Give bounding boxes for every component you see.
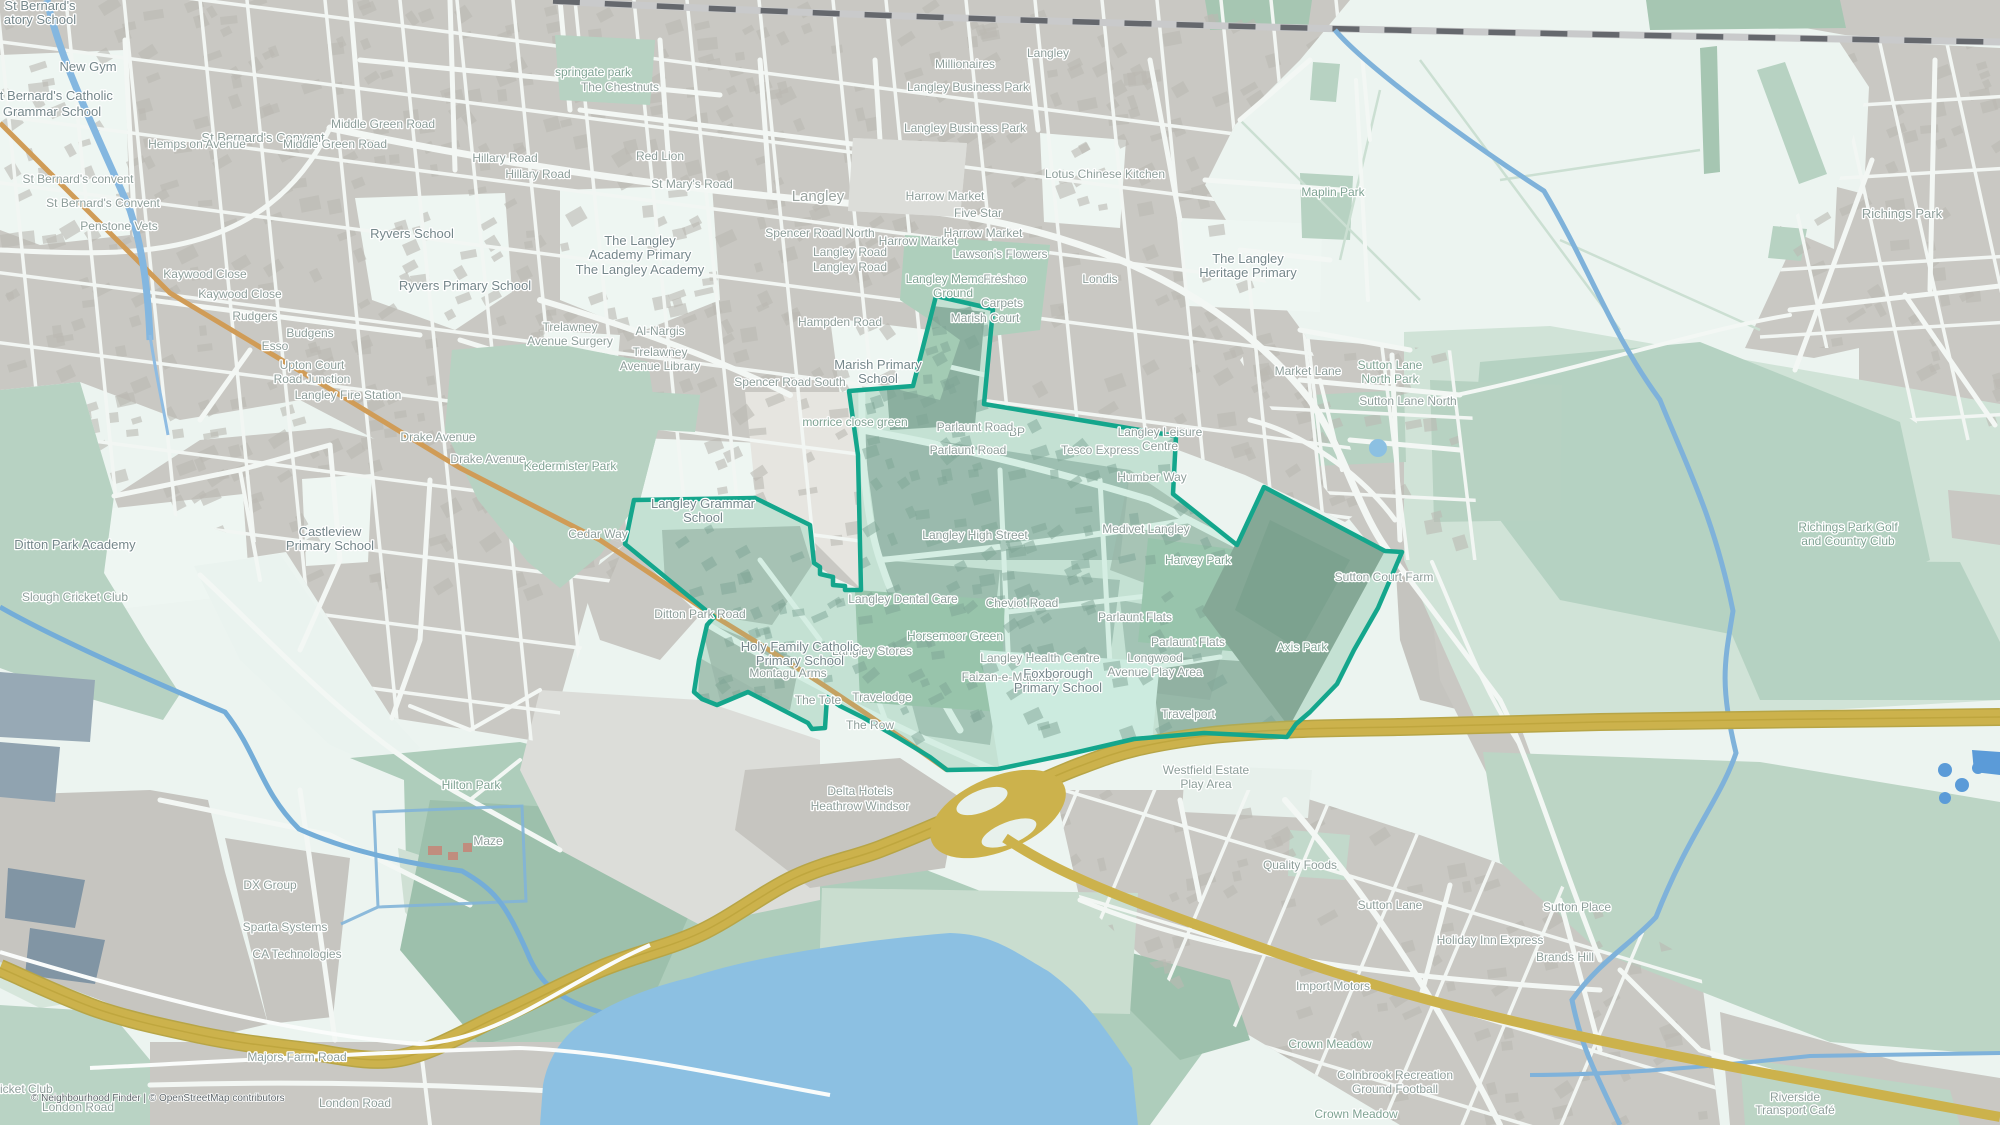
- svg-text:morrice close green: morrice close green: [802, 415, 907, 429]
- svg-text:The Chestnuts: The Chestnuts: [581, 80, 659, 94]
- svg-text:DX Group: DX Group: [243, 878, 297, 892]
- svg-text:Budgens: Budgens: [286, 326, 333, 340]
- svg-text:Freshco: Freshco: [983, 272, 1027, 286]
- svg-text:Langley Road: Langley Road: [813, 260, 887, 274]
- svg-text:Cheviot Road: Cheviot Road: [986, 596, 1059, 610]
- svg-text:The Langley Academy: The Langley Academy: [576, 262, 705, 277]
- svg-text:Langley Business Park: Langley Business Park: [907, 80, 1030, 94]
- svg-text:Trelawney: Trelawney: [633, 345, 688, 359]
- svg-text:Kaywood Close: Kaywood Close: [163, 267, 247, 281]
- svg-text:Richings Park Golf: Richings Park Golf: [1798, 520, 1898, 534]
- svg-text:Colnbrook Recreation: Colnbrook Recreation: [1337, 1068, 1453, 1082]
- svg-text:Esso: Esso: [262, 339, 289, 353]
- svg-text:Primary School: Primary School: [286, 538, 374, 553]
- svg-text:Millionaires: Millionaires: [935, 57, 995, 71]
- svg-text:Kaywood Close: Kaywood Close: [198, 287, 282, 301]
- svg-text:Lotus Chinese Kitchen: Lotus Chinese Kitchen: [1045, 167, 1165, 181]
- svg-text:Parlaunt Road: Parlaunt Road: [937, 420, 1014, 434]
- svg-text:Carpets: Carpets: [981, 296, 1023, 310]
- svg-text:Westfield Estate: Westfield Estate: [1163, 763, 1250, 777]
- svg-text:Ditton Park Academy: Ditton Park Academy: [14, 537, 136, 552]
- svg-text:Transport Café: Transport Café: [1755, 1103, 1835, 1117]
- svg-text:Avenue Play Area: Avenue Play Area: [1107, 665, 1203, 679]
- svg-text:Travelport: Travelport: [1161, 707, 1215, 721]
- svg-text:Langley: Langley: [792, 188, 845, 205]
- svg-text:Travelodge: Travelodge: [852, 690, 912, 704]
- svg-text:Spencer Road South: Spencer Road South: [734, 375, 845, 389]
- svg-text:St Bernard's Convent: St Bernard's Convent: [46, 196, 160, 210]
- svg-text:Langley Business Park: Langley Business Park: [904, 121, 1027, 135]
- svg-text:Langley Dental Care: Langley Dental Care: [848, 592, 958, 606]
- svg-text:Grammar School: Grammar School: [3, 104, 101, 119]
- svg-text:and Country Club: and Country Club: [1801, 534, 1895, 548]
- svg-text:Langley: Langley: [1027, 46, 1069, 60]
- svg-text:Maze: Maze: [473, 834, 503, 848]
- svg-text:atory School: atory School: [4, 12, 76, 27]
- svg-text:Sutton Court Farm: Sutton Court Farm: [1335, 570, 1434, 584]
- svg-text:Sutton Lane: Sutton Lane: [1358, 898, 1423, 912]
- svg-text:St Bernard's Catholic: St Bernard's Catholic: [0, 88, 113, 103]
- svg-text:Montagu Arms: Montagu Arms: [749, 666, 826, 680]
- svg-text:Parlaunt Road: Parlaunt Road: [930, 443, 1007, 457]
- svg-text:Rudgers: Rudgers: [232, 309, 277, 323]
- svg-text:St Mary's Road: St Mary's Road: [651, 177, 733, 191]
- svg-text:Heritage Primary: Heritage Primary: [1199, 265, 1297, 280]
- svg-text:Trelawney: Trelawney: [543, 320, 598, 334]
- svg-text:Sutton Lane North: Sutton Lane North: [1359, 394, 1456, 408]
- svg-text:Brands Hill: Brands Hill: [1536, 950, 1594, 964]
- svg-text:Slough Cricket Club: Slough Cricket Club: [22, 590, 128, 604]
- svg-text:Londis: Londis: [1082, 272, 1117, 286]
- svg-text:Five Star: Five Star: [954, 206, 1002, 220]
- svg-text:Market Lane: Market Lane: [1275, 364, 1342, 378]
- svg-text:Langley Road: Langley Road: [813, 245, 887, 259]
- svg-text:Humber Way: Humber Way: [1117, 470, 1187, 484]
- svg-text:Drake Avenue: Drake Avenue: [450, 452, 525, 466]
- svg-text:Kedermister Park: Kedermister Park: [524, 459, 618, 473]
- svg-text:Al-Nargis: Al-Nargis: [635, 324, 684, 338]
- svg-text:Harrow Market: Harrow Market: [906, 189, 985, 203]
- svg-text:The Row: The Row: [846, 718, 894, 732]
- svg-text:Avenue Surgery: Avenue Surgery: [527, 334, 613, 348]
- svg-text:Upton Court: Upton Court: [280, 358, 345, 372]
- svg-text:Majors Farm Road: Majors Farm Road: [247, 1050, 346, 1064]
- svg-text:North Park: North Park: [1361, 372, 1419, 386]
- svg-text:Road Junction: Road Junction: [274, 372, 351, 386]
- svg-text:Castleview: Castleview: [299, 524, 362, 539]
- svg-text:Penstone Vets: Penstone Vets: [80, 219, 157, 233]
- svg-text:Cedar Way: Cedar Way: [568, 527, 628, 541]
- svg-text:Hemps on Avenue: Hemps on Avenue: [148, 137, 246, 151]
- svg-text:Parlaunt Flats: Parlaunt Flats: [1151, 635, 1225, 649]
- svg-text:Ground: Ground: [933, 286, 973, 300]
- svg-text:Marish Primary: Marish Primary: [834, 357, 922, 372]
- svg-text:St Bernard's convent: St Bernard's convent: [22, 172, 134, 186]
- svg-text:Heathrow Windsor: Heathrow Windsor: [811, 799, 910, 813]
- svg-text:School: School: [858, 371, 898, 386]
- svg-text:© Neighbourhood Finder | © Ope: © Neighbourhood Finder | © OpenStreetMap…: [31, 1093, 285, 1104]
- svg-text:Parlaunt Flats: Parlaunt Flats: [1098, 610, 1172, 624]
- svg-text:Crown Meadow: Crown Meadow: [1288, 1037, 1372, 1051]
- svg-text:springate park: springate park: [555, 65, 632, 79]
- svg-text:Richings Park: Richings Park: [1862, 206, 1943, 221]
- svg-text:Academy Primary: Academy Primary: [589, 247, 692, 262]
- svg-text:The Tote: The Tote: [795, 693, 842, 707]
- svg-text:Lawson's Flowers: Lawson's Flowers: [953, 247, 1048, 261]
- svg-text:Ryvers Primary School: Ryvers Primary School: [399, 278, 531, 293]
- svg-text:Riverside: Riverside: [1770, 1090, 1820, 1104]
- svg-text:Tesco Express: Tesco Express: [1061, 443, 1139, 457]
- svg-text:Medivet Langley: Medivet Langley: [1102, 522, 1189, 536]
- svg-text:Hilton Park: Hilton Park: [442, 778, 502, 792]
- svg-text:Langley Leisure: Langley Leisure: [1118, 425, 1203, 439]
- svg-text:New Gym: New Gym: [59, 59, 116, 74]
- svg-text:Axis Park: Axis Park: [1277, 640, 1329, 654]
- svg-text:Foxborough: Foxborough: [1023, 666, 1092, 681]
- svg-text:Langley High Street: Langley High Street: [922, 528, 1028, 542]
- svg-text:The Langley: The Langley: [604, 233, 676, 248]
- svg-text:Ryvers School: Ryvers School: [370, 226, 454, 241]
- svg-text:Middle Green Road: Middle Green Road: [331, 117, 435, 131]
- svg-text:Crown Meadow: Crown Meadow: [1314, 1107, 1398, 1121]
- svg-text:Langley Fire Station: Langley Fire Station: [295, 388, 402, 402]
- svg-text:Quality Foods: Quality Foods: [1263, 858, 1337, 872]
- svg-text:The Langley: The Langley: [1212, 251, 1284, 266]
- svg-text:Marish Court: Marish Court: [951, 311, 1020, 325]
- svg-text:Spencer Road North: Spencer Road North: [765, 226, 874, 240]
- svg-text:Harrow Market: Harrow Market: [879, 234, 958, 248]
- svg-text:Langley Grammar: Langley Grammar: [651, 496, 756, 511]
- svg-text:Maplin Park: Maplin Park: [1301, 185, 1365, 199]
- svg-text:Sutton Lane: Sutton Lane: [1358, 358, 1423, 372]
- svg-text:Longwood: Longwood: [1127, 651, 1182, 665]
- svg-text:Primary School: Primary School: [1014, 680, 1102, 695]
- svg-text:Hillary Road: Hillary Road: [472, 151, 537, 165]
- svg-text:Middle Green Road: Middle Green Road: [283, 137, 387, 151]
- svg-text:Hillary Road: Hillary Road: [505, 167, 570, 181]
- svg-text:Play Area: Play Area: [1180, 777, 1232, 791]
- svg-text:Red Lion: Red Lion: [636, 149, 684, 163]
- svg-text:Import Motors: Import Motors: [1296, 979, 1370, 993]
- svg-text:School: School: [683, 510, 723, 525]
- svg-text:Delta Hotels: Delta Hotels: [827, 784, 892, 798]
- svg-text:Harvey Park: Harvey Park: [1165, 553, 1232, 567]
- svg-text:Ground Football: Ground Football: [1352, 1082, 1438, 1096]
- svg-text:CA Technologies: CA Technologies: [252, 947, 341, 961]
- svg-text:London Road: London Road: [319, 1096, 391, 1110]
- svg-text:Sutton Place: Sutton Place: [1543, 900, 1611, 914]
- svg-text:Holiday Inn Express: Holiday Inn Express: [1437, 933, 1544, 947]
- svg-text:Sparta Systems: Sparta Systems: [243, 920, 328, 934]
- svg-text:Avenue Library: Avenue Library: [620, 359, 701, 373]
- svg-text:Hampden Road: Hampden Road: [798, 315, 882, 329]
- svg-text:Drake Avenue: Drake Avenue: [400, 430, 475, 444]
- svg-text:Langley Health Centre: Langley Health Centre: [980, 651, 1100, 665]
- svg-text:Horsemoor Green: Horsemoor Green: [907, 629, 1003, 643]
- svg-text:Ditton Park Road: Ditton Park Road: [654, 607, 745, 621]
- svg-text:Centre: Centre: [1142, 439, 1178, 453]
- svg-text:Holy Family Catholic: Holy Family Catholic: [741, 639, 860, 654]
